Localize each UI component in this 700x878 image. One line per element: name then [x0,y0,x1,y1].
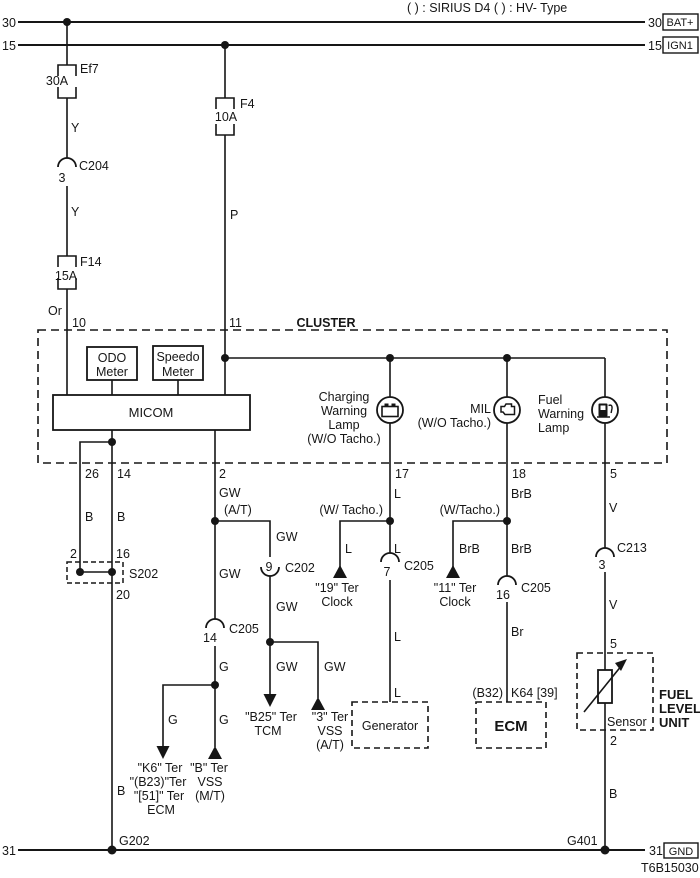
connector-pin: 3 [59,171,66,185]
splice-pin-right: 16 [116,547,130,561]
wire-label-l: L [394,487,401,501]
terminal-arrow-up-icon [446,565,460,578]
connector-arc-icon [596,548,614,557]
wire-label-v: V [609,598,618,612]
connector-name: C213 [617,541,647,555]
fuse-bracket-bottom [216,124,234,135]
terminal-label: "11" Ter [434,581,476,595]
rail-15-left-label: 15 [2,39,16,53]
pin-11: 11 [229,316,242,330]
odo-meter-label: Meter [96,365,128,379]
diagram-code: T6B15030 [641,861,699,875]
lamp-label: Lamp [328,418,359,432]
wire-label-br: Br [511,625,524,639]
rail-31-right-label: 31 [649,844,663,858]
wire-label-gw: GW [324,660,346,674]
terminal-label: VSS [317,724,342,738]
pin-14: 14 [117,467,131,481]
pump-window [601,406,606,411]
option-note-w-tacho: (W/ Tacho.) [319,503,383,517]
power-rails: 30 15 30 15 BAT+ IGN1 ( ) : SIRIUS D4 ( … [2,1,698,53]
wire-label-l: L [394,686,401,700]
micom-label: MICOM [129,405,174,420]
junction-dot [503,354,511,362]
lamp-label: Warning [538,407,584,421]
fuel-unit-title: FUEL [659,687,693,702]
junction-dot [221,41,229,49]
terminal-label: Clock [439,595,471,609]
generator-label: Generator [362,719,418,733]
terminal-tcm: "B25" Ter TCM [245,694,297,738]
cluster-title: CLUSTER [296,316,355,330]
wire-label-y: Y [71,121,80,135]
wire-label-l: L [394,542,401,556]
connector-name: C204 [79,159,109,173]
fuse-name: Ef7 [80,62,99,76]
connector-c205-16: 16 C205 [496,576,551,602]
ign-tag: IGN1 [667,40,693,52]
fuel-warning-lamp: Fuel Warning Lamp [538,393,618,435]
terminal-label: "[51]" Ter [134,789,184,803]
schematic-canvas: 30 15 30 15 BAT+ IGN1 ( ) : SIRIUS D4 ( … [0,0,700,878]
fuse-bracket-top [216,98,234,109]
connector-name: C205 [521,581,551,595]
terminal-arrow-up-icon [333,565,347,578]
wire-label-gw: GW [276,660,298,674]
terminal-clock11: "11" Ter Clock [434,565,476,609]
terminal-label: VSS [197,775,222,789]
gnd-tag: GND [669,846,694,858]
junction-dot [386,517,394,525]
junction-dot [63,18,71,26]
terminal-vss-mt: "B" Ter VSS (M/T) [190,746,228,803]
fuse-rating: 15A [55,269,78,283]
wire-label-b: B [117,784,125,798]
terminal-label: ECM [147,803,175,817]
fuel-unit-pin-bottom: 2 [610,734,617,748]
fuse-rating: 10A [215,110,238,124]
junction-dot [266,638,274,646]
terminal-label: (M/T) [195,789,225,803]
terminal-label: "B25" Ter [245,710,297,724]
wire-label-gw: GW [276,600,298,614]
rail-31-left-label: 31 [2,844,16,858]
connector-arc-icon [206,619,224,628]
connector-pin: 14 [203,631,217,645]
connector-name: C202 [285,561,315,575]
junction-dot [386,354,394,362]
lamp-label: (W/O Tacho.) [307,432,380,446]
rail-15-right-label: 15 [648,39,662,53]
wire-label-v: V [609,501,618,515]
pin-17: 17 [395,467,409,481]
charging-warning-lamp: Charging Warning Lamp (W/O Tacho.) [307,390,403,446]
fuse-bracket-bottom [58,87,76,98]
lamp-label: MIL [470,402,491,416]
wire-label-p: P [230,208,238,222]
terminal-label: (A/T) [316,738,344,752]
ground-g401-label: G401 [567,834,598,848]
splice-name: S202 [129,567,158,581]
splice-pin-left: 2 [70,547,77,561]
terminal-label: Clock [321,595,353,609]
lamp-label: Fuel [538,393,562,407]
terminal-arrow-up-icon [311,697,325,710]
splice-dot [76,568,84,576]
splice-pin-out: 20 [116,588,130,602]
fuse-bracket-top [58,256,76,267]
terminal-label: "B" Ter [190,761,228,775]
terminal-arrow-up-icon [208,746,222,759]
ecm-label: ECM [494,718,527,735]
junction-dot [221,354,229,362]
lamp-label: Warning [321,404,367,418]
fuel-unit-title: LEVEL [659,701,700,716]
lamp-label: Lamp [538,421,569,435]
connector-arc-icon [58,158,76,167]
lamp-label: Charging [319,390,370,404]
connector-pin: 9 [266,560,273,574]
connector-name: C205 [404,559,434,573]
wire-label-l: L [394,630,401,644]
fuse-f4: F4 10A [215,97,255,135]
ecm-box: (B32) K64 [39] ECM [472,686,557,748]
wire-label-y: Y [71,205,80,219]
wire-label-brb: BrB [459,542,480,556]
wire-label-b: B [85,510,93,524]
rail-30-right-label: 30 [648,16,662,30]
connector-name: C205 [229,622,259,636]
connector-pin: 16 [496,588,510,602]
wire-label-or: Or [48,304,62,318]
wire-segment [80,442,112,572]
fuel-level-unit: 5 Sensor FUEL LEVEL UNIT 2 [577,637,700,748]
odo-meter-label: ODO [98,351,127,365]
connector-c213: 3 C213 [596,541,647,572]
wire-label-gw: GW [276,530,298,544]
terminal-ecm-mt: "K6" Ter "(B23)"Ter "[51]" Ter ECM [130,746,187,817]
wiring-diagram: 30 15 30 15 BAT+ IGN1 ( ) : SIRIUS D4 ( … [0,0,700,878]
wire-label-g: G [219,660,229,674]
terminal-label: "19" Ter [315,581,358,595]
mil-lamp: MIL (W/O Tacho.) [418,397,520,430]
fuse-name: F4 [240,97,255,111]
connector-pin: 3 [599,558,606,572]
cluster-block: CLUSTER 10 11 ODO Meter Speedo Meter MIC… [38,316,667,463]
fuel-unit-title: UNIT [659,715,689,730]
ground-g202-label: G202 [119,834,150,848]
fuse-rating: 30A [46,74,69,88]
fuel-unit-pin-top: 5 [610,637,617,651]
wire-label-brb: BrB [511,487,532,501]
terminal-arrow-down-icon [264,694,277,707]
wire-label-l: L [345,542,352,556]
speedo-meter-label: Speedo [156,350,199,364]
generator-box: Generator [352,702,428,748]
sensor-label: Sensor [607,715,647,729]
fuse-f14: F14 15A [55,255,102,289]
variant-note: ( ) : SIRIUS D4 ( ) : HV- Type [407,1,567,15]
fuse-name: F14 [80,255,102,269]
splice-dot [108,568,116,576]
option-note-w-tacho: (W/Tacho.) [440,503,500,517]
terminal-label: TCM [254,724,281,738]
junction-dot [211,517,219,525]
resistor-arrowhead-icon [615,659,627,671]
speedo-meter-label: Meter [162,365,194,379]
rail-30-left-label: 30 [2,16,16,30]
terminal-label: "(B23)"Ter [130,775,187,789]
pin-18: 18 [512,467,526,481]
battery-body [382,407,398,417]
terminal-vss-at: "3" Ter VSS (A/T) [311,697,348,752]
wire-label-b: B [609,787,617,801]
ecm-ref-left: (B32) [472,686,503,700]
lamp-label: (W/O Tacho.) [418,416,491,430]
wire-label-brb: BrB [511,542,532,556]
wire-label-b: B [117,510,125,524]
junction-dot [503,517,511,525]
wire-label-g: G [168,713,178,727]
connector-c205-7: 7 C205 [381,553,434,579]
pin-5: 5 [610,467,617,481]
terminal-clock19: "19" Ter Clock [315,565,358,609]
wire-label-g: G [219,713,229,727]
wire-label-gw: GW [219,486,241,500]
connector-c202: 9 C202 [261,560,315,576]
connector-c204: 3 C204 [58,158,109,185]
ecm-ref-right: K64 [39] [511,686,558,700]
pin-2: 2 [219,467,226,481]
junction-dot [108,438,116,446]
pin-26: 26 [85,467,99,481]
fuse-ef7: Ef7 30A [46,62,99,98]
connector-arc-icon [498,576,516,585]
terminal-arrow-down-icon [157,746,170,759]
connector-c205-14: 14 C205 [203,619,259,645]
ground-rail: 31 31 GND G202 G401 T6B15030 [2,834,699,875]
pin-10: 10 [72,316,86,330]
wire-segment [215,521,270,557]
junction-dot [211,681,219,689]
cluster-output-pins: 26 14 2 17 18 5 [85,467,617,481]
connector-pin: 7 [384,565,391,579]
bat-tag: BAT+ [666,17,693,29]
wire-label-at: (A/T) [224,503,252,517]
terminal-label: "3" Ter [312,710,348,724]
wire-label-gw: GW [219,567,241,581]
terminal-label: "K6" Ter [138,761,183,775]
